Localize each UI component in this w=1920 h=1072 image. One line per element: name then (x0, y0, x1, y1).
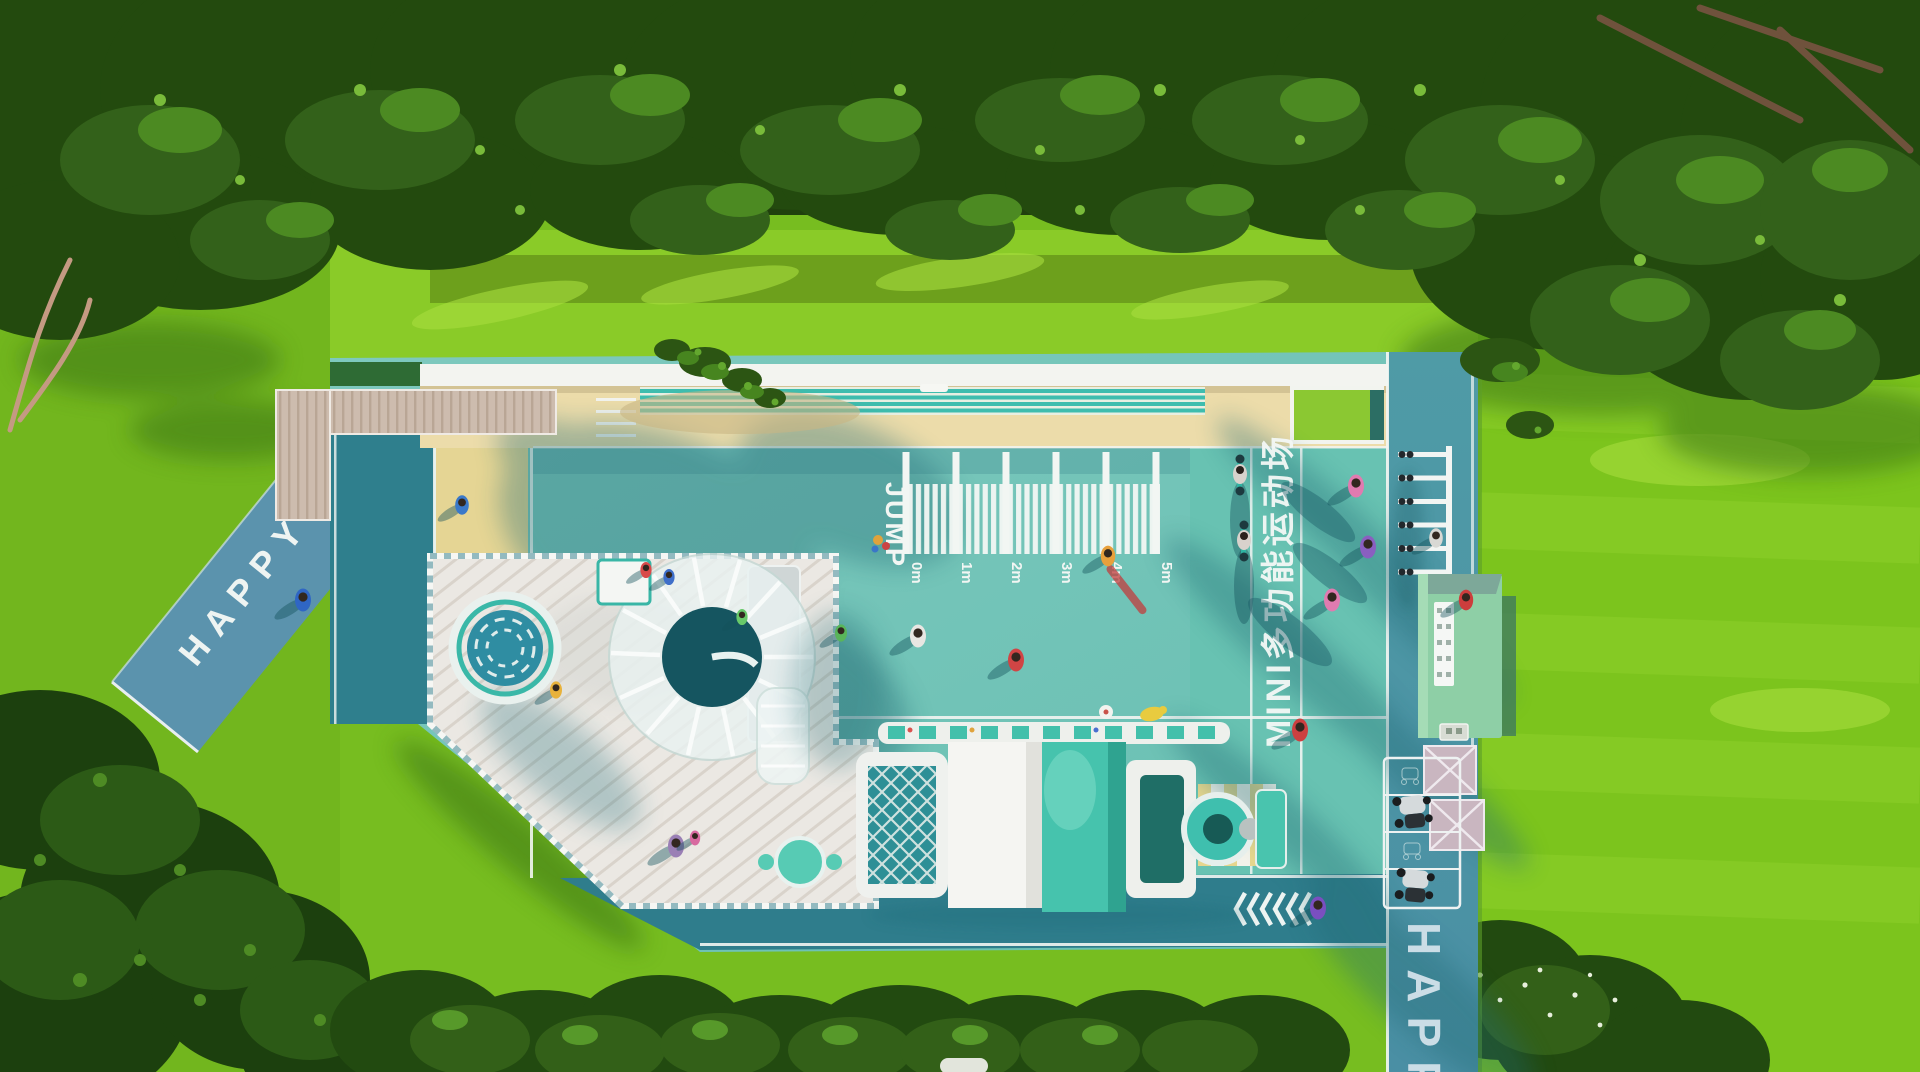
planter-box (1292, 388, 1384, 442)
hut-annex-2 (1430, 800, 1484, 850)
white-canopy-carriage (948, 742, 1042, 908)
top-wall (420, 364, 1478, 386)
ruler-tick-5: 5m (1158, 562, 1175, 584)
seat-row (878, 722, 1230, 744)
ruler-tick-3: 3m (1058, 562, 1075, 584)
happy-right-label: HAPPY (1398, 922, 1450, 1072)
net-carriage (856, 752, 948, 898)
hut-annex-1 (1424, 746, 1476, 794)
court-title: MINI多功能运动场 (1260, 432, 1298, 748)
parking-sign (1440, 724, 1468, 740)
watermark-tab (940, 1058, 988, 1072)
cab (1256, 790, 1286, 868)
court-zone-dark (330, 412, 434, 724)
ruler-tick-1: 1m (958, 562, 975, 584)
jump-label: JUMP (880, 482, 910, 569)
round-climber (453, 596, 557, 700)
terrace-bench (920, 384, 948, 392)
hedge-strip (330, 362, 422, 386)
playground-aerial-render: HAPPY (0, 0, 1920, 1072)
teal-canopy-carriage (1042, 742, 1126, 912)
ruler-tick-2: 2m (1008, 562, 1025, 584)
scene-canvas: HAPPY (0, 0, 1920, 1072)
